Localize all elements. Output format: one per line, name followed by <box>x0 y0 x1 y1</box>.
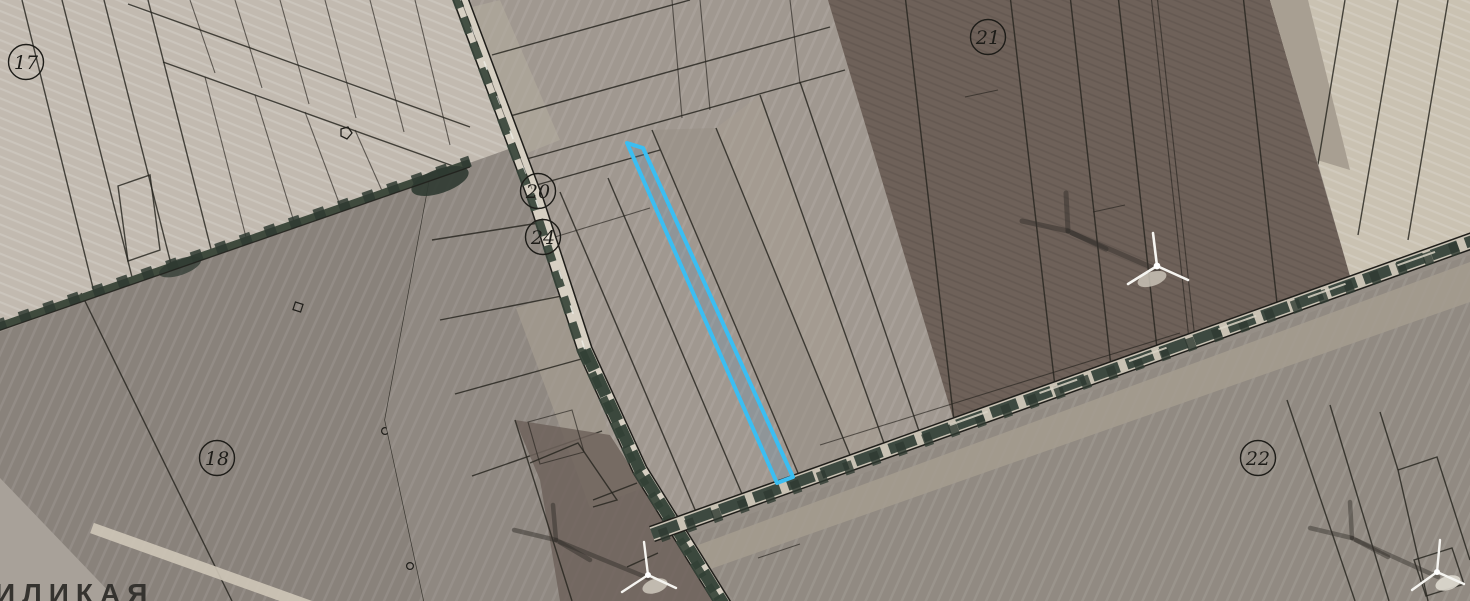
aerial-map[interactable]: 17 18 20 24 21 22 ИЛИКАЯ <box>0 0 1470 601</box>
svg-text:17: 17 <box>14 52 39 74</box>
map-canvas[interactable]: 17 18 20 24 21 22 ИЛИКАЯ <box>0 0 1470 601</box>
svg-text:24: 24 <box>530 227 555 249</box>
place-name-label: ИЛИКАЯ <box>0 578 154 601</box>
svg-text:20: 20 <box>525 181 550 203</box>
svg-text:18: 18 <box>205 448 229 470</box>
svg-text:22: 22 <box>1245 448 1270 470</box>
svg-text:21: 21 <box>975 27 1000 49</box>
